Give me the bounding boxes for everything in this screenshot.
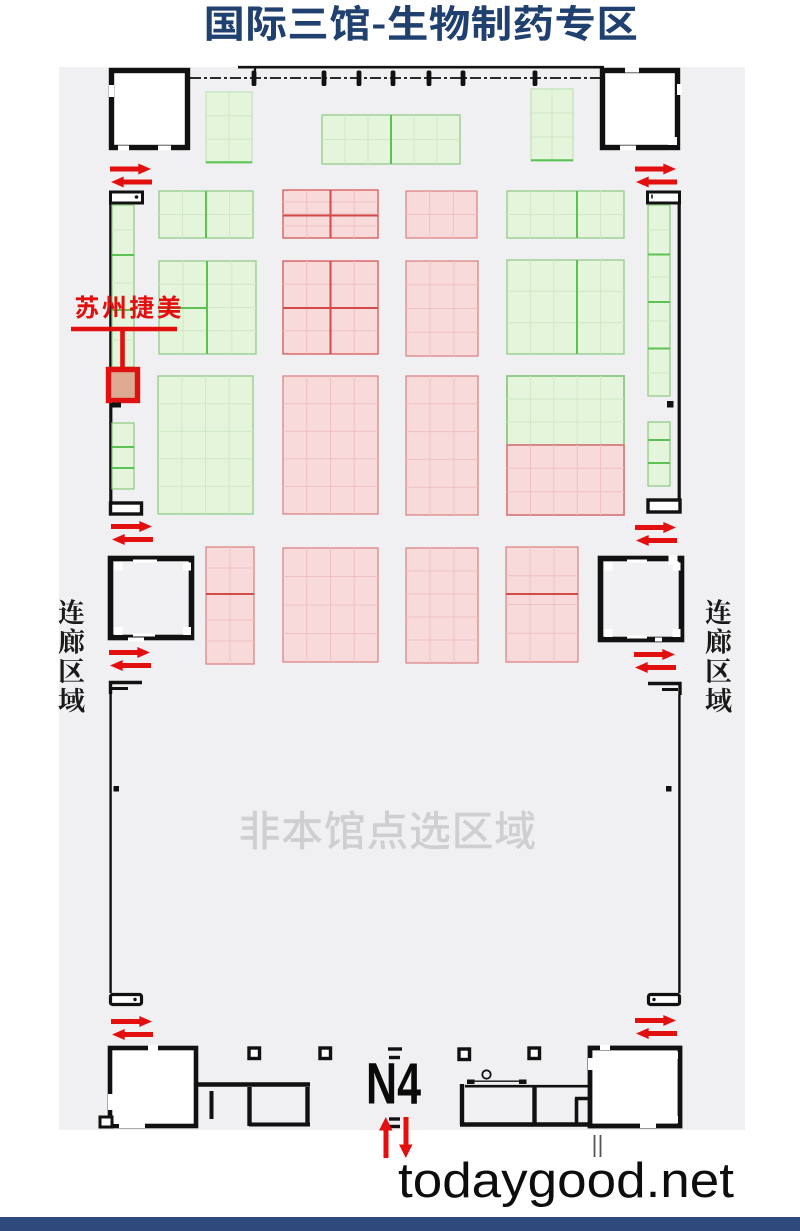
svg-text:N4: N4 (366, 1052, 421, 1117)
svg-text:todaygood.net: todaygood.net (398, 1154, 734, 1208)
